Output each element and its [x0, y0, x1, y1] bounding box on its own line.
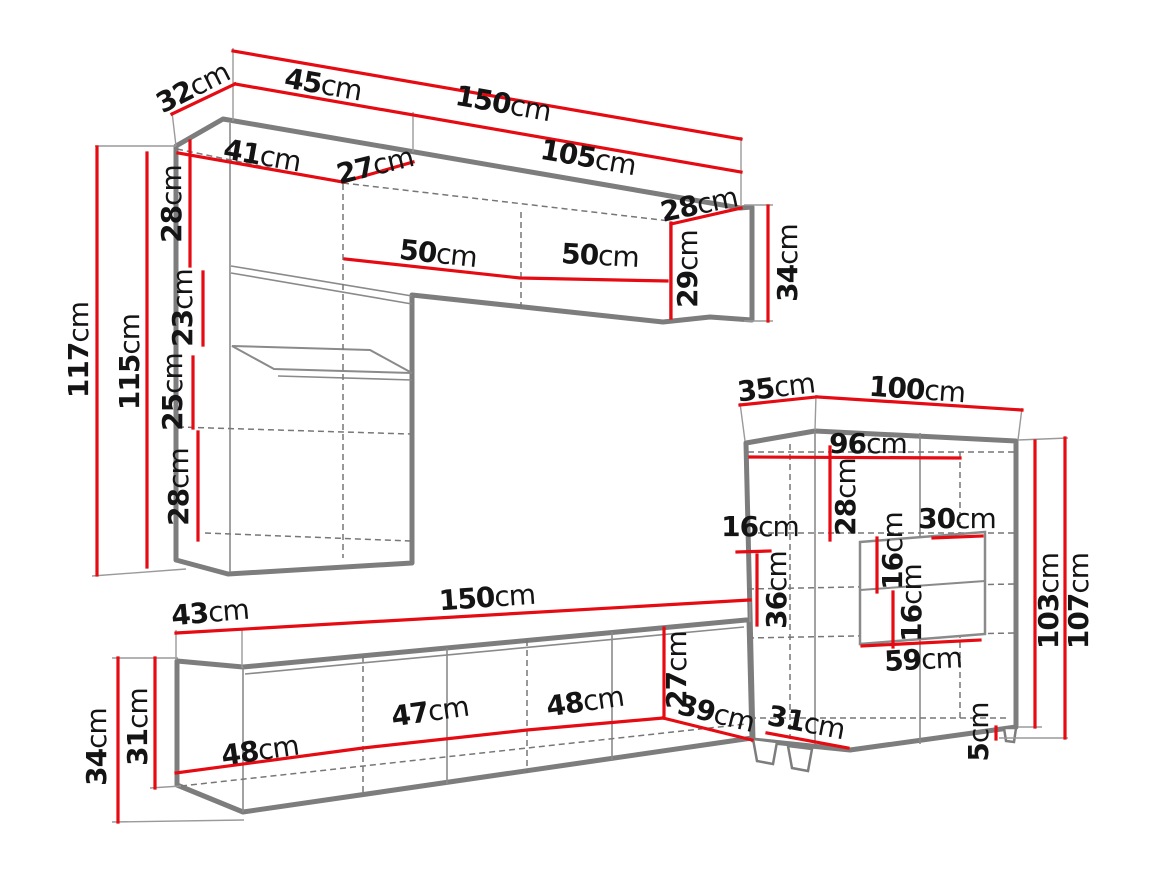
dim-label-niche-w-59: 59cm — [884, 644, 963, 676]
dim-label-col-seg-25: 25cm — [159, 353, 187, 431]
dim-label-stand-width-150: 150cm — [438, 581, 536, 616]
dim-label-niche-w-30: 30cm — [918, 505, 996, 533]
cabinet-foot-right — [1004, 728, 1016, 742]
dim-label-cab-width-100: 100cm — [868, 373, 966, 408]
dim-label-shelf-door-50-left: 50cm — [398, 236, 478, 272]
dim-label-stand-h-34: 34cm — [83, 708, 111, 786]
dim-label-cab-seg-28: 28cm — [832, 458, 860, 536]
diagram-page: 32cm 45cm 150cm 105cm 41cm 27cm 28cm 50c… — [0, 0, 1159, 869]
dim-label-cab-h-103: 103cm — [1035, 553, 1063, 649]
cabinet-foot-left — [753, 739, 777, 764]
dim-label-cab-left-16: 16cm — [721, 513, 799, 541]
dim-label-niche-16-b: 16cm — [898, 564, 926, 642]
wall-unit-top — [176, 119, 752, 574]
dim-label-shelf-end-out-34: 34cm — [774, 224, 802, 302]
dim-label-col-seg-23: 23cm — [169, 269, 197, 347]
dim-label-col-seg-28: 28cm — [165, 448, 193, 526]
dim-label-shelf-door-50-right: 50cm — [561, 240, 640, 272]
dim-label-shelf-end-h-29: 29cm — [674, 230, 702, 308]
dim-label-cab-foot-5: 5cm — [965, 702, 993, 761]
dim-label-cab-inner-96: 96cm — [829, 430, 907, 458]
dim-label-stand-h-31: 31cm — [124, 688, 152, 766]
dim-label-top-left-h-28: 28cm — [158, 165, 186, 243]
dim-label-cab-h-107: 107cm — [1065, 553, 1093, 649]
dim-label-col-h-117: 117cm — [65, 302, 93, 398]
dim-label-stand-depth-43: 43cm — [170, 596, 250, 631]
dim-label-col-h-115: 115cm — [116, 314, 144, 410]
cabinet-foot-middle — [788, 746, 812, 771]
dim-label-cab-seg-36: 36cm — [763, 551, 791, 629]
